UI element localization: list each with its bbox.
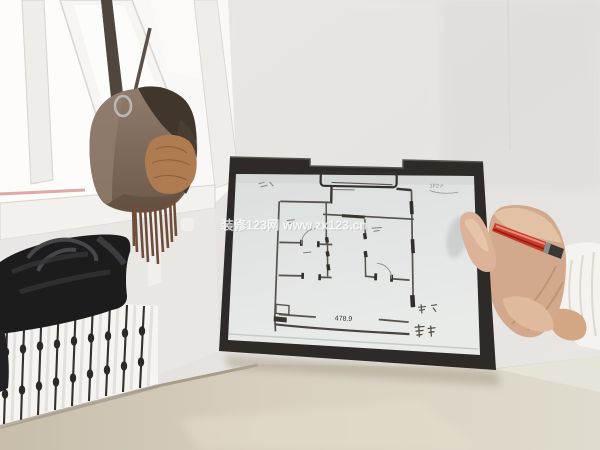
svg-text:1F2↗: 1F2↗ xyxy=(429,184,444,190)
svg-text:478.9: 478.9 xyxy=(335,315,353,323)
svg-text:装修123网 www.zx123.cn: 装修123网 www.zx123.cn xyxy=(220,218,367,233)
